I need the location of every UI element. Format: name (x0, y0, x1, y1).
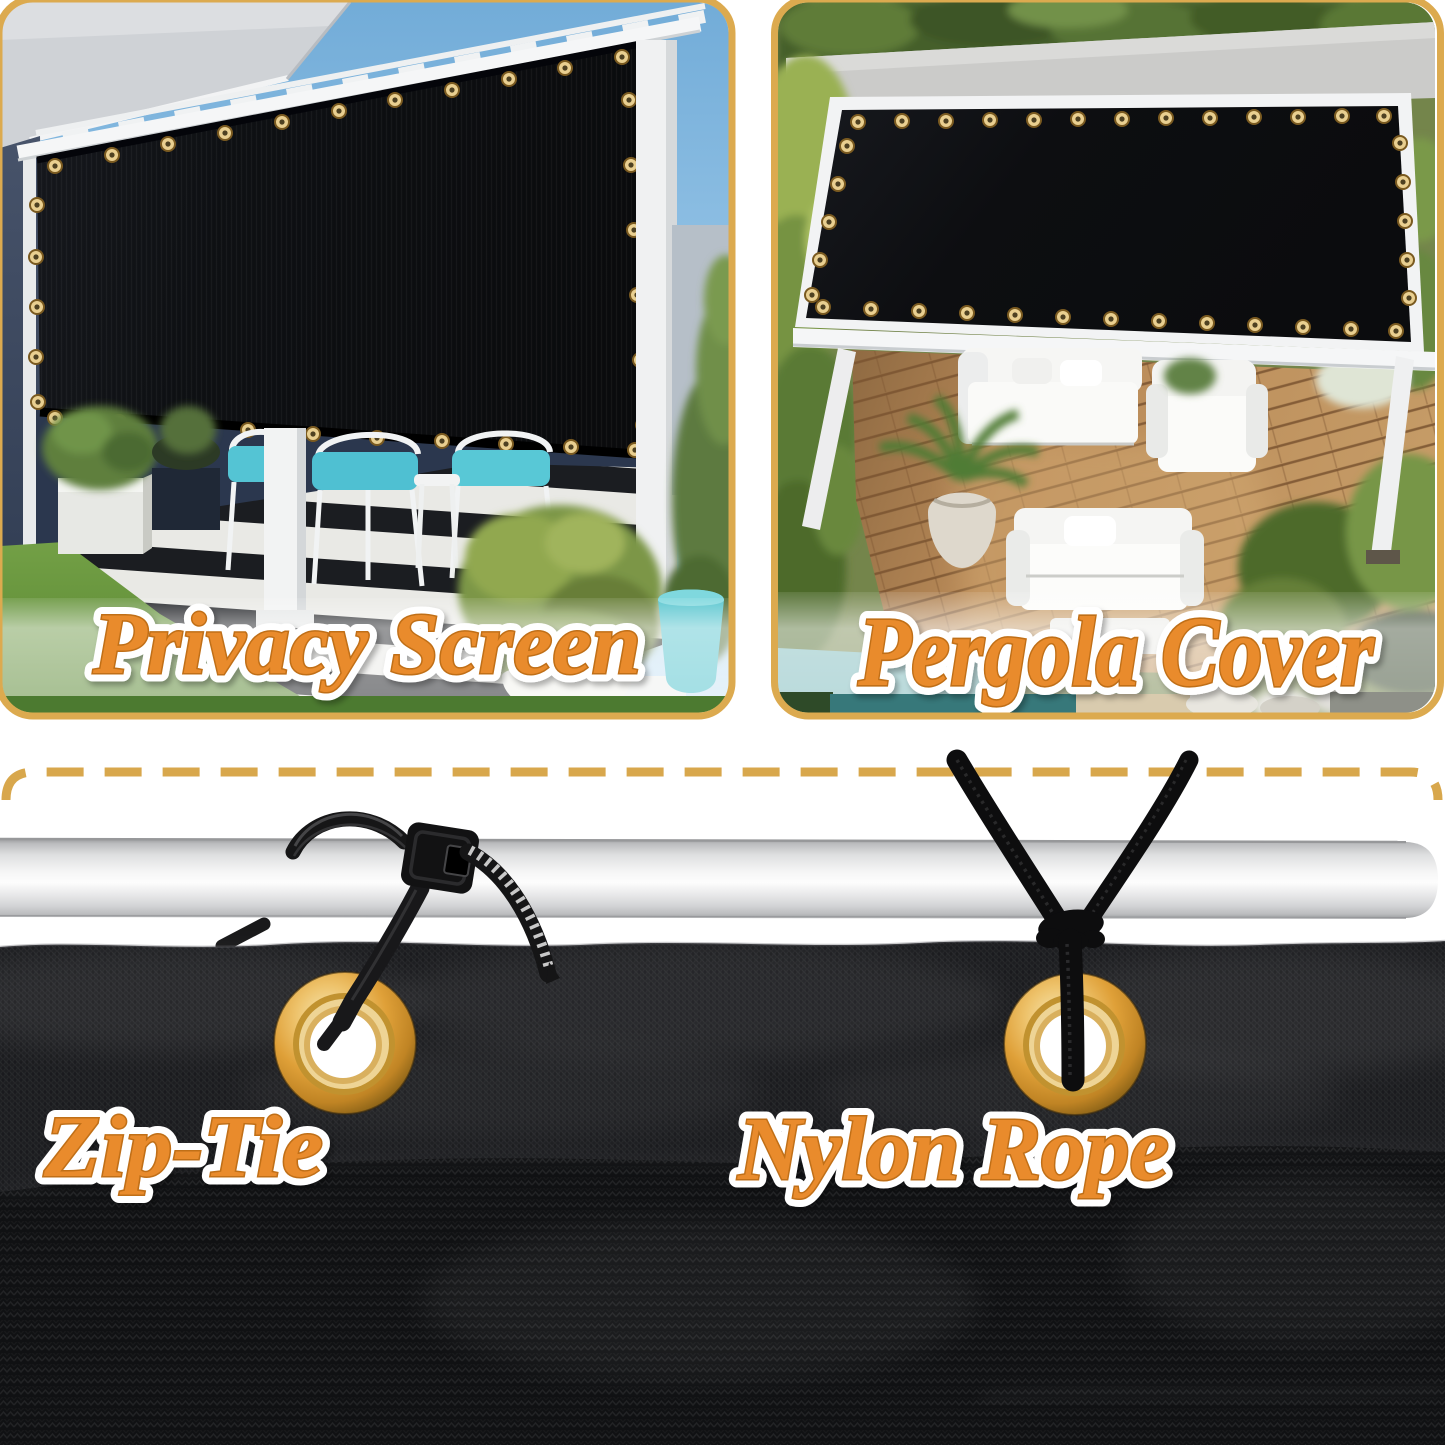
svg-text:Pergola Cover: Pergola Cover (857, 596, 1375, 707)
svg-text:Zip-Tie: Zip-Tie (43, 1099, 323, 1196)
svg-text:Privacy Screen: Privacy Screen (92, 596, 641, 693)
svg-text:Nylon Rope: Nylon Rope (737, 1100, 1169, 1199)
